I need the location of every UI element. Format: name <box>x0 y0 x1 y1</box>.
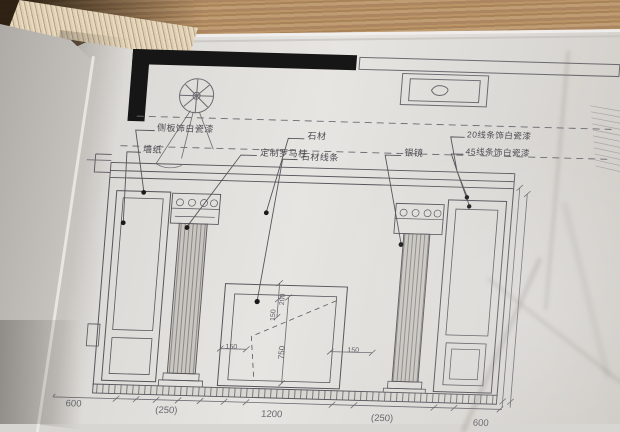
plan-cabinet-inner <box>409 79 481 103</box>
dim-bottom-250-left: (250) <box>155 406 178 416</box>
dim-niche-left: 150 <box>225 344 237 351</box>
plan-wall-horizontal <box>132 49 357 70</box>
dim-niche-ledge: 150 <box>270 309 278 321</box>
dim-bottom-1200: 1200 <box>261 410 283 420</box>
niche-height-dim <box>278 294 291 386</box>
dim-niche-top: 200 <box>279 293 287 305</box>
left-roman-column <box>157 193 221 388</box>
bottom-left-shadow <box>0 320 80 424</box>
dim-niche-height: 750 <box>278 346 287 360</box>
wall-return <box>94 154 111 172</box>
callout-panel-finish: 侧板饰白瓷漆 <box>157 124 215 135</box>
plan-wall-outline <box>359 57 620 76</box>
plan-basin-blob <box>431 85 448 95</box>
callout-wallpaper: 墙纸 <box>143 145 163 155</box>
paper-sheen <box>300 120 620 424</box>
wall-left-edge <box>93 177 110 386</box>
left-panel <box>84 190 171 382</box>
